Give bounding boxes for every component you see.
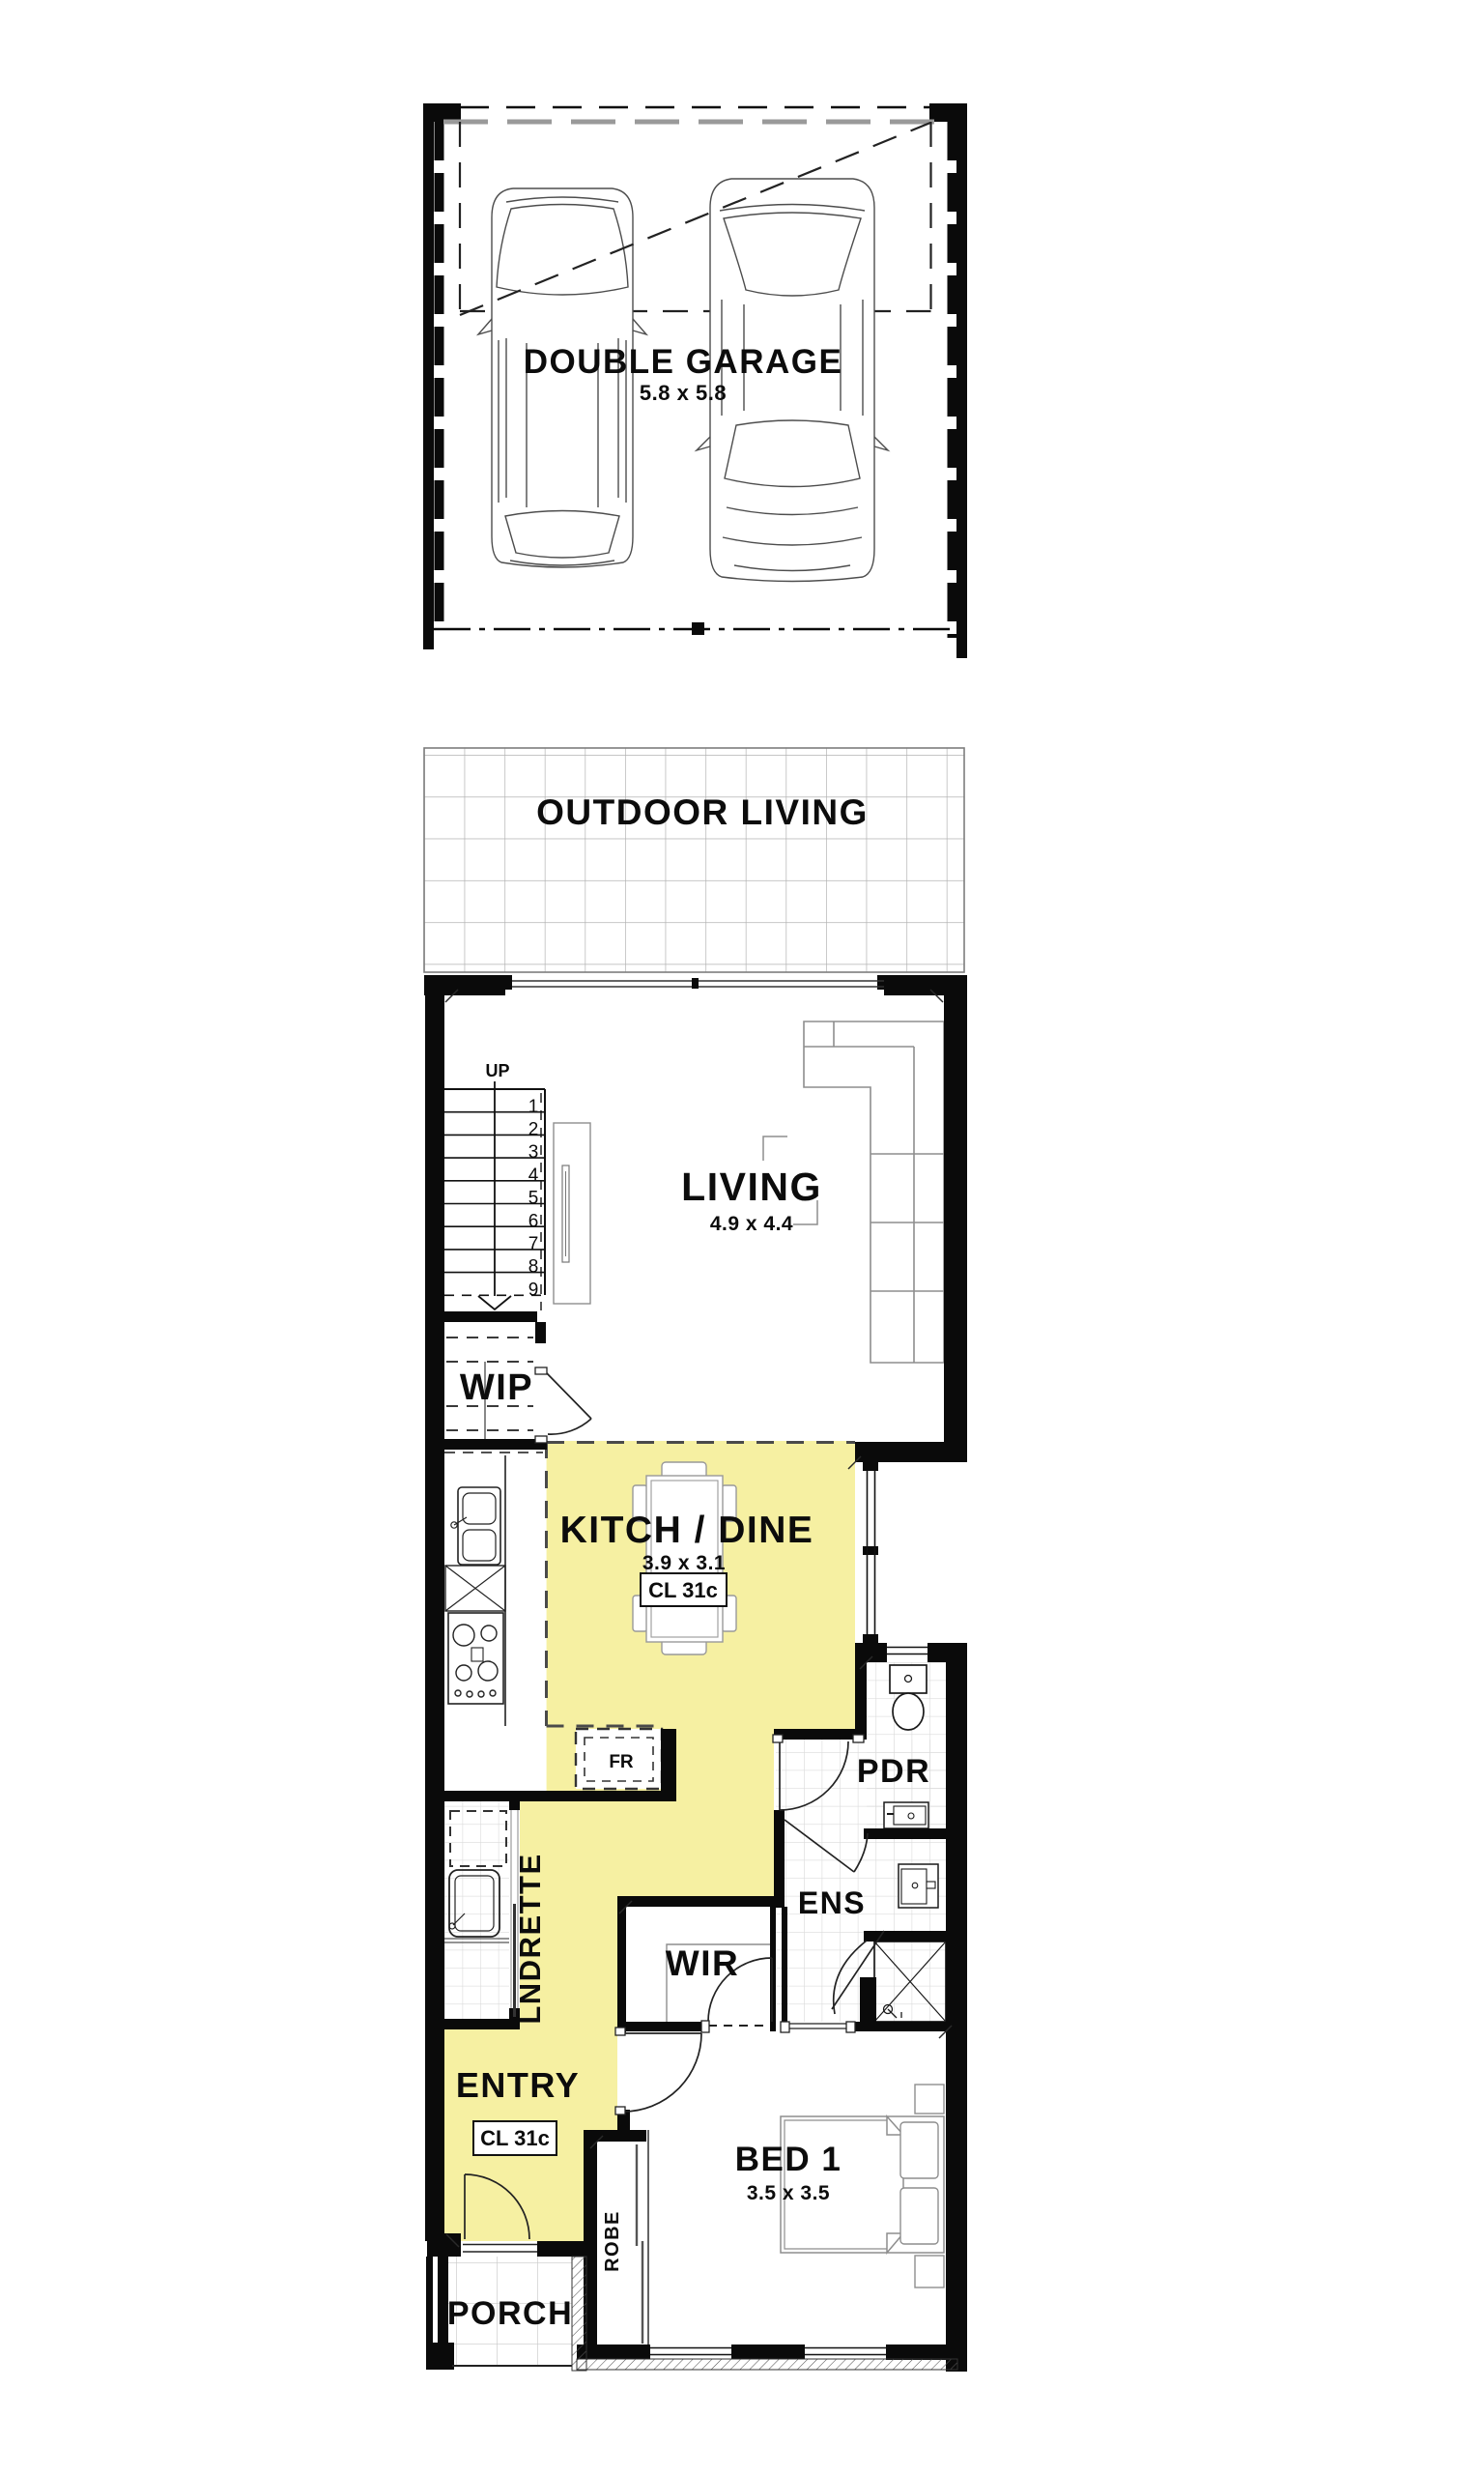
- svg-text:8: 8: [528, 1257, 539, 1278]
- svg-text:UP: UP: [485, 1061, 509, 1080]
- svg-text:9: 9: [528, 1280, 539, 1300]
- svg-text:FR: FR: [609, 1752, 634, 1772]
- svg-text:4.9 x 4.4: 4.9 x 4.4: [710, 1213, 793, 1235]
- svg-text:4: 4: [528, 1165, 539, 1186]
- svg-text:CL 31c: CL 31c: [648, 1578, 718, 1602]
- svg-text:7: 7: [528, 1234, 539, 1254]
- svg-text:PORCH: PORCH: [447, 2295, 573, 2332]
- svg-text:5.8 x 5.8: 5.8 x 5.8: [640, 381, 727, 405]
- svg-text:3.5 x 3.5: 3.5 x 3.5: [747, 2182, 830, 2204]
- svg-text:KITCH / DINE: KITCH / DINE: [560, 1510, 814, 1551]
- svg-text:6: 6: [528, 1211, 539, 1231]
- svg-text:1: 1: [528, 1097, 539, 1117]
- svg-text:LNDRETTE: LNDRETTE: [513, 1853, 547, 2024]
- svg-text:BED 1: BED 1: [735, 2141, 842, 2178]
- svg-text:5: 5: [528, 1189, 539, 1209]
- svg-text:WIP: WIP: [460, 1367, 533, 1408]
- svg-text:ENS: ENS: [798, 1885, 866, 1920]
- svg-text:OUTDOOR LIVING: OUTDOOR LIVING: [536, 792, 869, 832]
- svg-text:3.9 x 3.1: 3.9 x 3.1: [642, 1552, 726, 1574]
- svg-text:DOUBLE GARAGE: DOUBLE GARAGE: [524, 343, 843, 381]
- svg-text:2: 2: [528, 1120, 539, 1140]
- svg-text:WIR: WIR: [666, 1943, 739, 1983]
- svg-text:PDR: PDR: [857, 1753, 930, 1790]
- svg-text:ROBE: ROBE: [602, 2210, 623, 2272]
- svg-text:LIVING: LIVING: [681, 1165, 822, 1209]
- svg-text:CL 31c: CL 31c: [480, 2126, 550, 2150]
- svg-text:3: 3: [528, 1142, 539, 1163]
- svg-text:ENTRY: ENTRY: [456, 2065, 580, 2105]
